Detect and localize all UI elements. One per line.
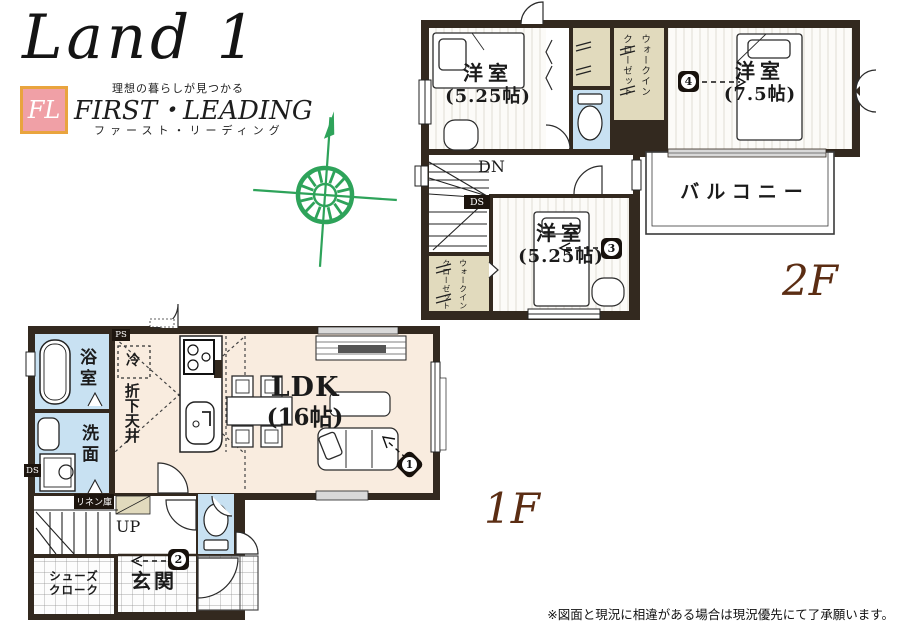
duct-space-2f: DS [464,195,490,209]
floor2-tag: 2F [782,256,838,305]
marker-3: 3 [601,238,622,259]
wash-basin-icon [38,418,59,450]
room-label-bedroom-a: 洋室 (5.25帖) [429,62,547,107]
room-label-washroom: 洗面 [78,424,98,480]
floor1-tag: 1F [484,484,540,533]
sofa-icon [318,428,398,470]
floorplan-flyer: Land 1 理想の暮らしが見つかる FL FIRST・LEADING ファース… [0,0,900,635]
room-label-bath: 浴室 [76,348,96,404]
room-label-wic-a: ウォークイン クローゼット [617,34,653,136]
marker-2: 2 [168,549,189,570]
marker-4: 4 [678,71,699,92]
room-label-bedroom-b: 洋室 (7.5帖) [700,60,820,105]
disclaimer-note: ※図面と現況に相違がある場合は現況優先にて了承願います。 [547,604,894,623]
duct-space-1f: DS [24,464,41,477]
room-label-ldk: LDK (16帖) [248,372,362,431]
room-label-shoe-closet: シューズ クローク [36,570,112,597]
stairs-up-label: UP [116,518,140,537]
room-label-entrance: 玄関 [131,570,177,594]
stove-icon [184,340,214,374]
linen-closet-label: リネン庫 [74,494,114,509]
pipe-space-box: PS [112,329,130,341]
washing-machine-icon [40,454,75,491]
bathtub-icon [40,340,70,404]
toilet-icon-2f [578,94,602,140]
stairs-dn-label: DN [478,158,505,177]
fridge-label: 冷 [126,353,140,370]
company-name-kana: ファースト・リーディング [94,122,285,138]
stool-icon-c [592,278,624,306]
fl-monogram: FL [20,86,68,134]
dropped-ceiling-label: 折下天井 [122,383,140,451]
kitchen-sink-icon [186,402,214,444]
room-label-wic-c: ウォークイン クローゼット [437,259,471,311]
tv-board-icon [316,336,406,360]
stool-icon-a [444,120,478,150]
room-label-balcony: バルコニー [660,181,830,203]
kitchen-counter [180,336,222,452]
logo-script: Land 1 [22,2,259,73]
